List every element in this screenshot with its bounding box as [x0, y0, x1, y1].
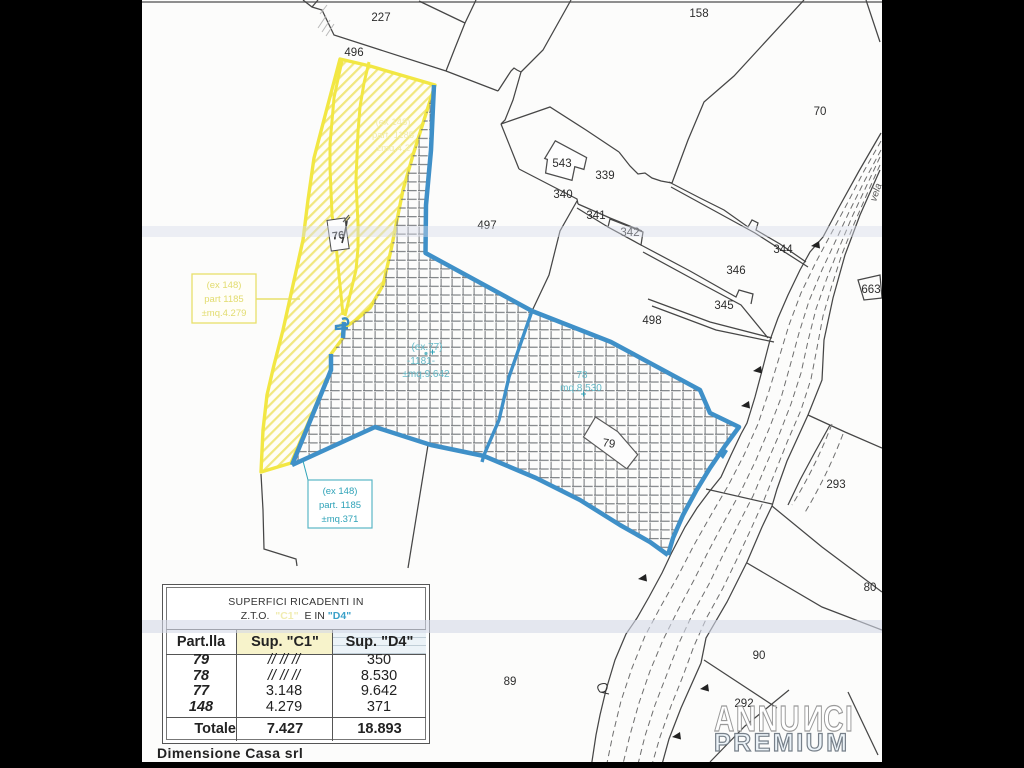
- svg-text:543: 543: [552, 158, 571, 170]
- svg-text:158: 158: [689, 8, 708, 20]
- svg-text:(ex 148): (ex 148): [323, 486, 358, 497]
- svg-text:79: 79: [602, 437, 616, 451]
- svg-text:339: 339: [595, 170, 614, 182]
- svg-text:±mq.4.2: ±mq.4.2: [376, 143, 410, 154]
- svg-text:part. 1185: part. 1185: [372, 130, 414, 141]
- svg-text:227: 227: [371, 12, 390, 24]
- svg-text:(ex 148): (ex 148): [376, 117, 411, 128]
- svg-text:345: 345: [714, 300, 733, 312]
- svg-text:89: 89: [504, 676, 517, 688]
- svg-text:341: 341: [586, 210, 605, 222]
- svg-text:-1181-: -1181-: [407, 356, 435, 367]
- svg-text:340: 340: [553, 189, 572, 201]
- svg-text:90: 90: [753, 650, 766, 662]
- svg-text:±mq.371: ±mq.371: [322, 514, 359, 525]
- svg-text:mq.8.530: mq.8.530: [560, 383, 602, 394]
- svg-text:496: 496: [344, 47, 363, 59]
- svg-text:498: 498: [642, 315, 661, 327]
- svg-text:part. 1185: part. 1185: [319, 500, 361, 511]
- svg-text:(ex 148): (ex 148): [207, 280, 242, 291]
- svg-text:344: 344: [773, 244, 793, 256]
- svg-text:±mq.4.279: ±mq.4.279: [202, 308, 247, 319]
- svg-text:(ex.77): (ex.77): [411, 342, 442, 353]
- svg-text:663: 663: [861, 284, 880, 296]
- svg-text:80: 80: [864, 582, 877, 594]
- svg-text:70: 70: [814, 106, 827, 118]
- svg-text:346: 346: [726, 265, 745, 277]
- svg-text:±mq.9.642: ±mq.9.642: [402, 369, 450, 380]
- svg-text:part 1185: part 1185: [204, 294, 243, 305]
- svg-text:293: 293: [826, 479, 845, 491]
- svg-text:78: 78: [576, 370, 588, 381]
